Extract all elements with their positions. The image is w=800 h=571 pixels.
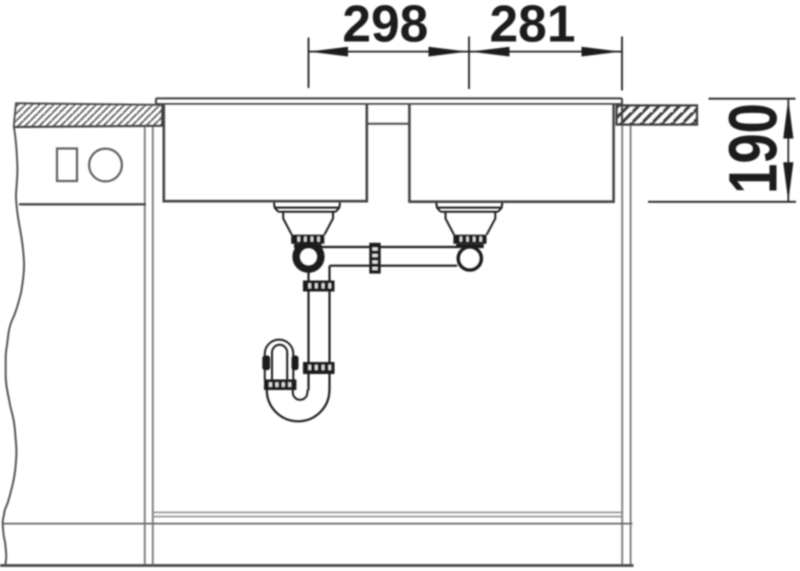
svg-text:298: 298 bbox=[342, 0, 428, 52]
svg-text:190: 190 bbox=[716, 103, 792, 194]
svg-text:281: 281 bbox=[490, 0, 576, 52]
